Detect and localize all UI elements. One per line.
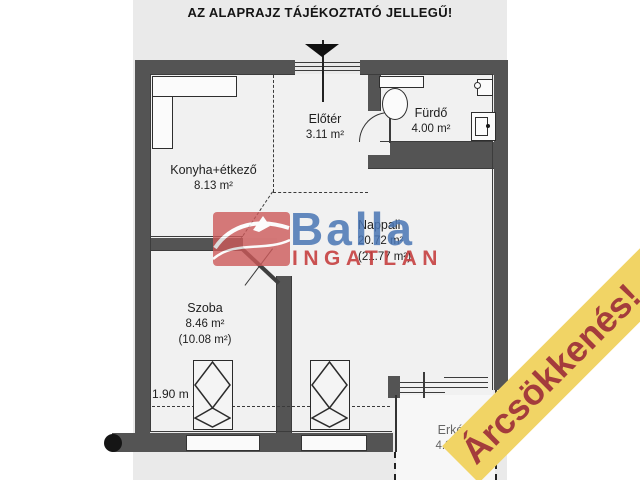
agency-logo-icon [213, 212, 290, 266]
dashed-boundary-horizontal [273, 192, 368, 193]
window-living [310, 360, 350, 430]
room-label-kitchen: Konyha+étkező 8.13 m² [150, 163, 277, 194]
wall-end-cap [104, 434, 122, 452]
watermark-brand: Balla [290, 206, 415, 252]
sink-knob [474, 82, 481, 89]
room-label-bathroom: Fürdő 4.00 m² [396, 106, 466, 137]
entry-arrow-icon [305, 44, 339, 57]
window-sill-living [301, 435, 367, 451]
room-label-bedroom: Szoba 8.46 m² (10.08 m²) [160, 301, 250, 348]
balcony-railing-left [394, 452, 396, 480]
watermark-subbrand: INGATLAN [292, 248, 443, 269]
toilet-tank [379, 76, 424, 88]
room-label-hall: Előtér 3.11 m² [285, 112, 365, 143]
floorplan-page: AZ ALAPRAJZ TÁJÉKOZTATÓ JELLEGŰ! [0, 0, 640, 480]
dimension-line [152, 406, 390, 407]
kitchen-counter [152, 76, 237, 97]
window-sill-bedroom [186, 435, 260, 451]
dimension-label: 1.90 m [152, 387, 200, 401]
balcony-wall-left [395, 395, 397, 452]
plan-disclaimer-title: AZ ALAPRAJZ TÁJÉKOZTATÓ JELLEGŰ! [133, 5, 507, 20]
washing-machine-dot [486, 124, 490, 128]
kitchen-counter-side [152, 96, 173, 149]
